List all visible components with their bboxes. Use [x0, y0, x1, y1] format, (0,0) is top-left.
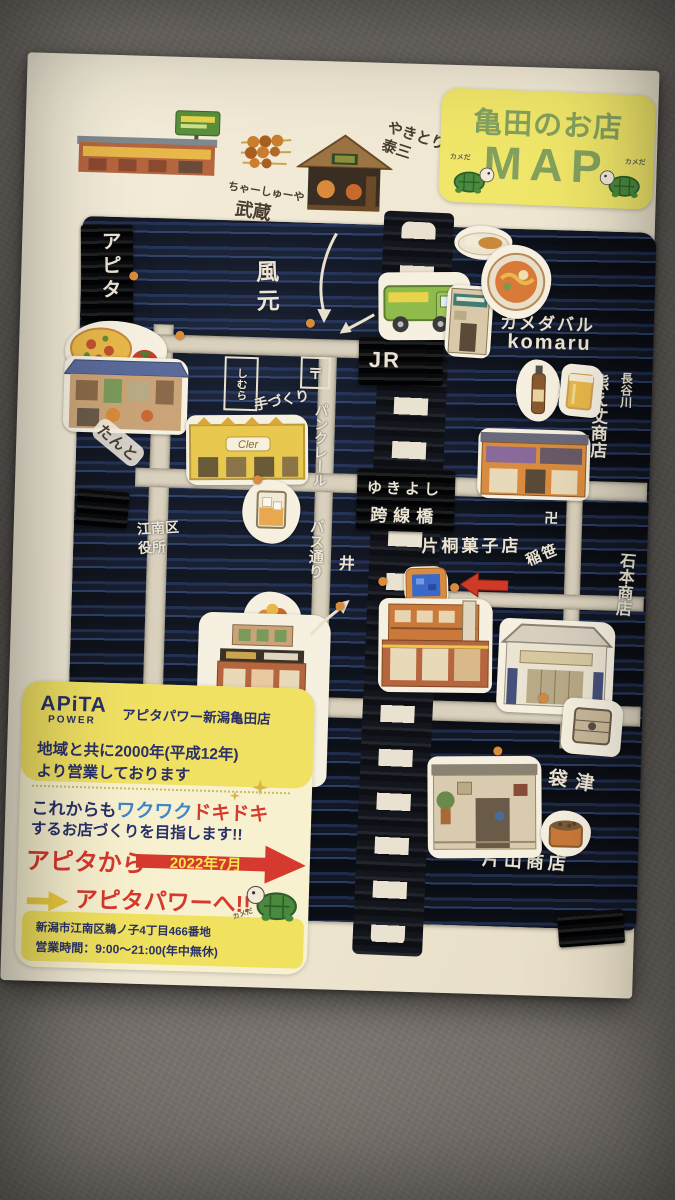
photo-vignette	[0, 0, 675, 1200]
photo-scene: やきとり 泰三 ちゃーしゅーや 武蔵	[0, 0, 675, 1200]
